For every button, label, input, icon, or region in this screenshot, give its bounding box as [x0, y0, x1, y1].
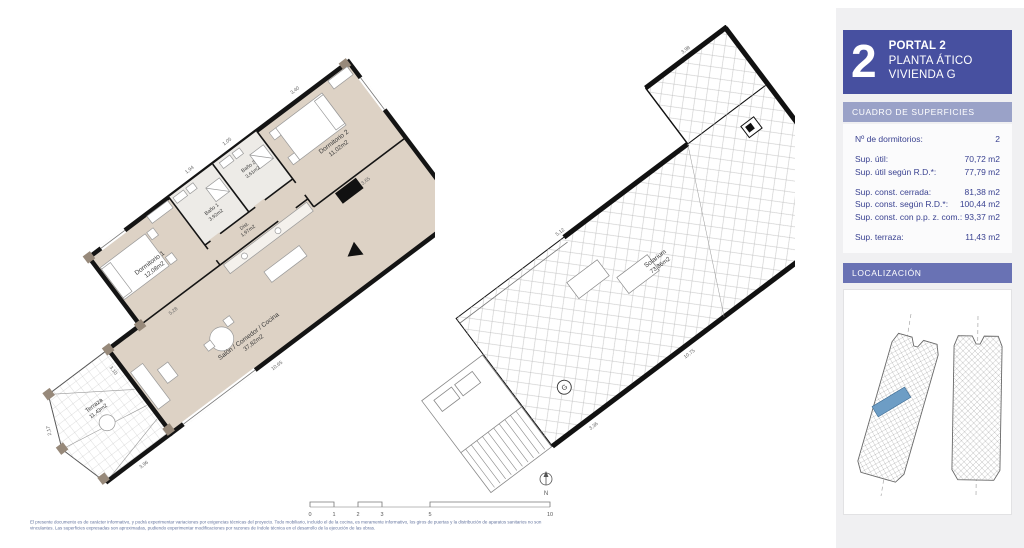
row-value: 77,79 m2: [965, 166, 1000, 178]
table-row: Sup. const. según R.D.*: 100,44 m2: [855, 198, 1000, 210]
row-value: 81,38 m2: [965, 186, 1000, 198]
row-value: 2: [995, 133, 1000, 145]
localization-header-bar: LOCALIZACIÓN: [843, 263, 1012, 283]
surfaces-header-bar: CUADRO DE SUPERFICIES: [843, 102, 1012, 122]
table-row: Sup. terraza: 11,43 m2: [855, 231, 1000, 243]
dim-label: 3,40: [289, 85, 301, 96]
row-label: Sup. útil según R.D.*:: [855, 166, 936, 178]
drawing-area: Dormitorio 1 12,08m2 Baño 1 3,92m2 Baño …: [0, 0, 836, 548]
roof-plan: G Solarium 73,86m2 5,12 3,98 10,75 3,36: [415, 25, 795, 495]
info-panel: 2 PORTAL 2 PLANTA ÁTICO VIVIENDA G CUADR…: [836, 8, 1024, 548]
dim-label: 1,94: [184, 165, 196, 176]
scale-tick-label: 2: [356, 512, 359, 518]
row-value: 100,44 m2: [960, 198, 1000, 210]
localization-map: [843, 289, 1012, 515]
dim-label: 2,17: [45, 425, 53, 436]
dim-label: 3,96: [138, 460, 150, 471]
unit-header: 2 PORTAL 2 PLANTA ÁTICO VIVIENDA G: [843, 30, 1012, 94]
row-label: Nº de dormitorios:: [855, 133, 923, 145]
row-label: Sup. const. con p.p. z. com.:: [855, 211, 962, 223]
row-label: Sup. const. según R.D.*:: [855, 198, 948, 210]
disclaimer: El presente documento es de carácter inf…: [30, 519, 590, 531]
surfaces-table: Nº de dormitorios: 2 Sup. útil: 70,72 m2…: [843, 124, 1012, 253]
scale-tick-label: 10: [547, 512, 553, 518]
portal-numeral: 2: [851, 38, 877, 84]
dim-label: 3,36: [588, 421, 600, 432]
site-building-right: [951, 336, 1002, 481]
site-building-left: [853, 332, 940, 484]
portal-title: PORTAL 2: [889, 39, 973, 54]
table-row: Sup. const. con p.p. z. com.: 93,37 m2: [855, 211, 1000, 223]
site-plan: [845, 296, 1011, 508]
disclaimer-line2: vinculantes. Las superficies expresadas …: [30, 525, 590, 531]
row-label: Sup. útil:: [855, 153, 888, 165]
table-row: Sup. útil: 70,72 m2: [855, 153, 1000, 165]
row-value: 11,43 m2: [965, 231, 1000, 243]
row-value: 70,72 m2: [965, 153, 1000, 165]
table-row: Sup. útil según R.D.*: 77,79 m2: [855, 166, 1000, 178]
scale-tick-label: 5: [428, 512, 431, 518]
table-row: Sup. const. cerrada: 81,38 m2: [855, 186, 1000, 198]
row-value: 93,37 m2: [965, 211, 1000, 223]
dim-label: 10,65: [270, 360, 284, 372]
unit-title: VIVIENDA G: [889, 68, 973, 83]
table-row: Nº de dormitorios: 2: [855, 133, 1000, 145]
floor-title: PLANTA ÁTICO: [889, 54, 973, 69]
row-label: Sup. const. cerrada:: [855, 186, 931, 198]
dim-label: 1,05: [222, 136, 234, 147]
scale-tick-label: 0: [308, 512, 311, 518]
dim-label: 10,75: [683, 348, 697, 360]
scale-tick-label: 3: [380, 512, 383, 518]
floor-plan: Dormitorio 1 12,08m2 Baño 1 3,92m2 Baño …: [15, 35, 435, 495]
row-label: Sup. terraza:: [855, 231, 904, 243]
scale-tick-label: 1: [332, 512, 335, 518]
